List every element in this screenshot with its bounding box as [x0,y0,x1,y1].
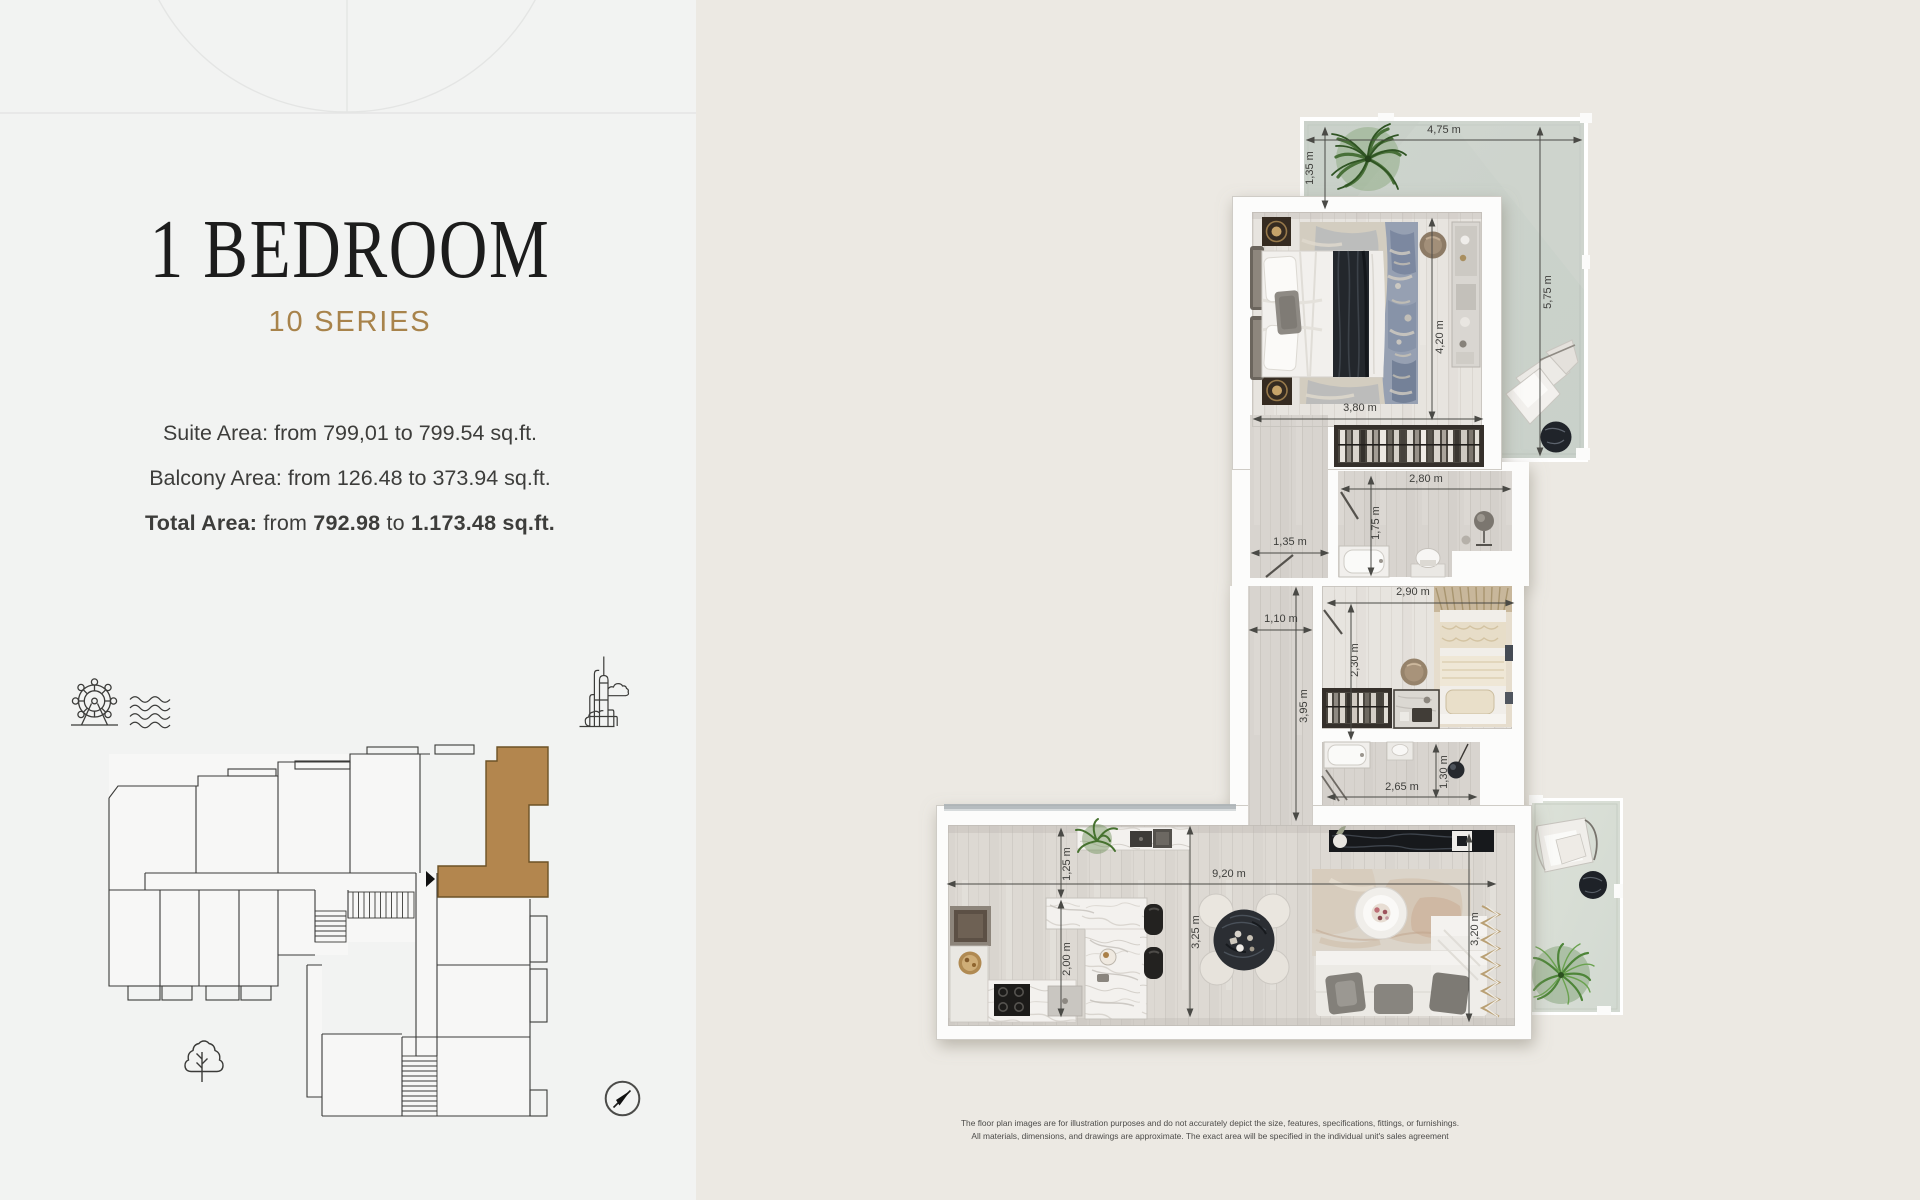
svg-text:5,75 m: 5,75 m [1542,275,1554,309]
svg-text:3,80 m: 3,80 m [1343,402,1377,414]
svg-text:4,20 m: 4,20 m [1434,320,1446,354]
svg-text:1,35 m: 1,35 m [1273,536,1307,548]
svg-text:1,10 m: 1,10 m [1264,613,1298,625]
svg-text:3,20 m: 3,20 m [1469,912,1481,946]
svg-text:3,95 m: 3,95 m [1298,689,1310,723]
svg-text:2,90 m: 2,90 m [1396,586,1430,598]
svg-text:1,35 m: 1,35 m [1304,151,1316,185]
svg-text:2,80 m: 2,80 m [1409,473,1443,485]
svg-text:3,25 m: 3,25 m [1190,915,1202,949]
svg-text:2,65 m: 2,65 m [1385,781,1419,793]
svg-text:1,25 m: 1,25 m [1061,847,1073,881]
svg-text:1,75 m: 1,75 m [1370,506,1382,540]
svg-text:9,20 m: 9,20 m [1212,868,1246,880]
svg-text:2,00 m: 2,00 m [1061,942,1073,976]
svg-text:1,30 m: 1,30 m [1438,755,1450,789]
svg-text:4,75 m: 4,75 m [1427,124,1461,136]
svg-text:2,30 m: 2,30 m [1349,643,1361,677]
